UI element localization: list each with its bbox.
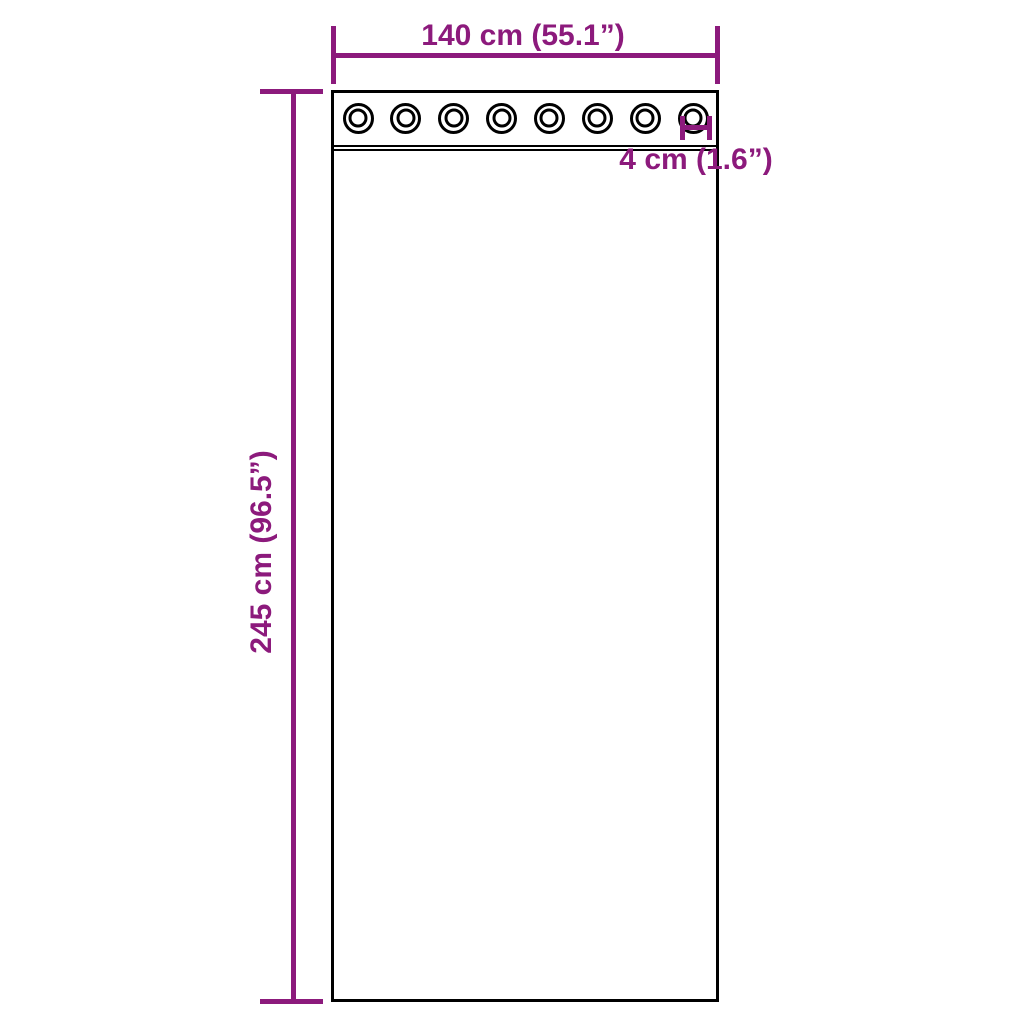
grommet-inner-ring	[349, 109, 368, 128]
grommet-inner-ring	[588, 109, 607, 128]
grommet-icon	[582, 103, 613, 134]
grommet-icon	[630, 103, 661, 134]
width-dimension-label: 140 cm (55.1”)	[421, 19, 624, 53]
grommet-icon	[534, 103, 565, 134]
height-dimension-tick-bottom	[260, 999, 323, 1004]
grommet-icon	[438, 103, 469, 134]
height-dimension-line	[291, 91, 296, 1002]
grommet-inner-ring	[396, 109, 415, 128]
height-dimension-tick-top	[260, 89, 323, 94]
grommet-icon	[486, 103, 517, 134]
width-dimension-tick-left	[331, 26, 336, 84]
height-dimension-label: 245 cm (96.5”)	[245, 450, 279, 653]
grommet-inner-ring	[540, 109, 559, 128]
curtain-dimension-diagram: 140 cm (55.1”) 245 cm (96.5”) 4 cm (1.6”…	[0, 0, 1024, 1024]
grommet-dimension-label: 4 cm (1.6”)	[619, 143, 772, 177]
grommet-inner-ring	[444, 109, 463, 128]
grommet-inner-ring	[636, 109, 655, 128]
grommet-inner-ring	[492, 109, 511, 128]
width-dimension-line	[333, 53, 718, 58]
grommet-icon	[343, 103, 374, 134]
width-dimension-tick-right	[715, 26, 720, 84]
curtain-panel-outline	[331, 90, 719, 1002]
grommet-dimension-bracket-connector	[680, 125, 712, 130]
grommet-icon	[390, 103, 421, 134]
